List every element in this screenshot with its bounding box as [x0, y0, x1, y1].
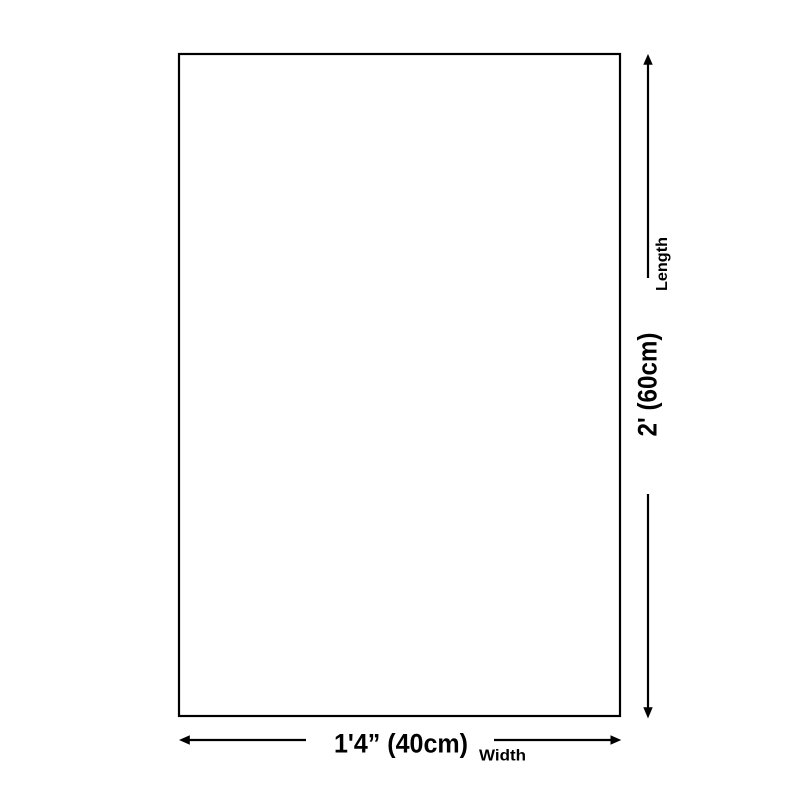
svg-text:Width: Width	[479, 748, 526, 765]
svg-text:1'4” (40cm): 1'4” (40cm)	[334, 729, 468, 759]
svg-text:Length: Length	[654, 237, 671, 291]
svg-text:2' (60cm): 2' (60cm)	[633, 333, 663, 437]
